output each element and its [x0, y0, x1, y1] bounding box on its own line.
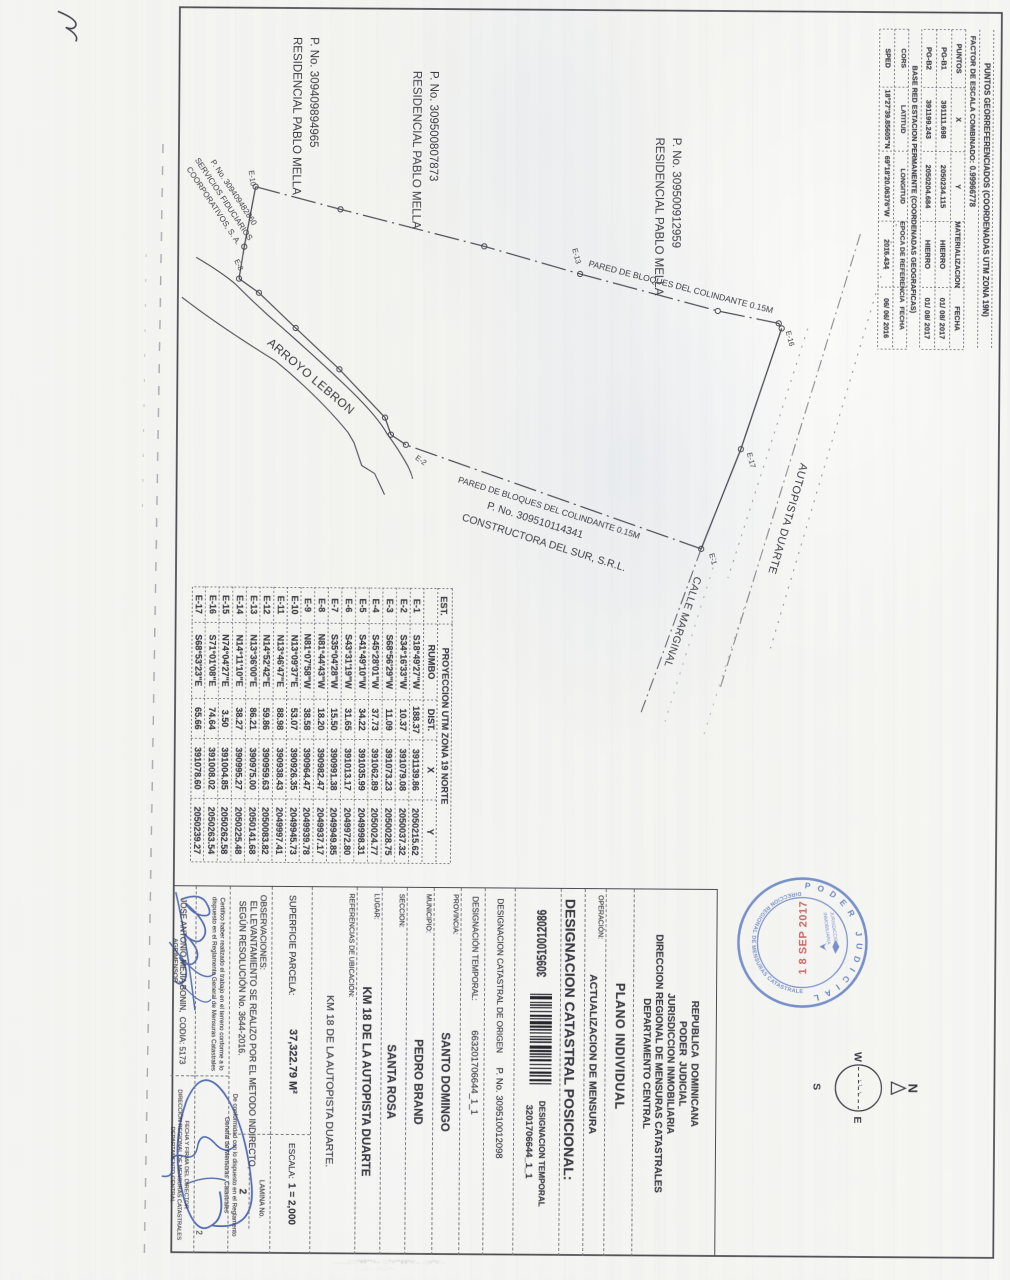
- svg-text:N: N: [905, 1084, 920, 1093]
- svg-text:CALLE MARGINAL: CALLE MARGINAL: [661, 575, 703, 669]
- svg-text:E-13: E-13: [570, 247, 583, 265]
- svg-text:P. No. 309409894965: P. No. 309409894965: [307, 37, 320, 148]
- svg-text:RESIDENCIAL PABLO MELLA: RESIDENCIAL PABLO MELLA: [290, 37, 303, 195]
- svg-text:W: W: [852, 1052, 864, 1062]
- svg-text:..:;;:... ..--::;;::--..: ..:;;:... ..--::;;::--..: [361, 1266, 395, 1272]
- svg-text:E-17: E-17: [745, 451, 758, 469]
- svg-text:1 8 SEP 2017: 1 8 SEP 2017: [797, 901, 810, 975]
- svg-text:PARED DE BLOQUES DEL COLINDANT: PARED DE BLOQUES DEL COLINDANTE 0.15M: [588, 258, 775, 315]
- svg-text:P. No. 309500807873: P. No. 309500807873: [427, 71, 440, 182]
- svg-text:S: S: [810, 1083, 822, 1090]
- svg-text:AUTOPISTA DUARTE: AUTOPISTA DUARTE: [765, 462, 809, 576]
- svg-text:P. No. 309500912959: P. No. 309500912959: [669, 138, 682, 249]
- svg-text:E-2: E-2: [414, 453, 429, 467]
- svg-text:ARROYO LEBRON: ARROYO LEBRON: [265, 335, 358, 417]
- svg-text:E-16: E-16: [784, 330, 797, 348]
- svg-text:E: E: [851, 1116, 863, 1123]
- svg-text:E-10: E-10: [247, 170, 258, 187]
- svg-text:E-8: E-8: [232, 258, 245, 272]
- svg-text:RESIDENCIAL PABLO MELLA: RESIDENCIAL PABLO MELLA: [409, 71, 422, 229]
- svg-text:E-1: E-1: [707, 552, 719, 566]
- svg-text:RESIDENCIAL PABLO MELLA: RESIDENCIAL PABLO MELLA: [652, 138, 665, 296]
